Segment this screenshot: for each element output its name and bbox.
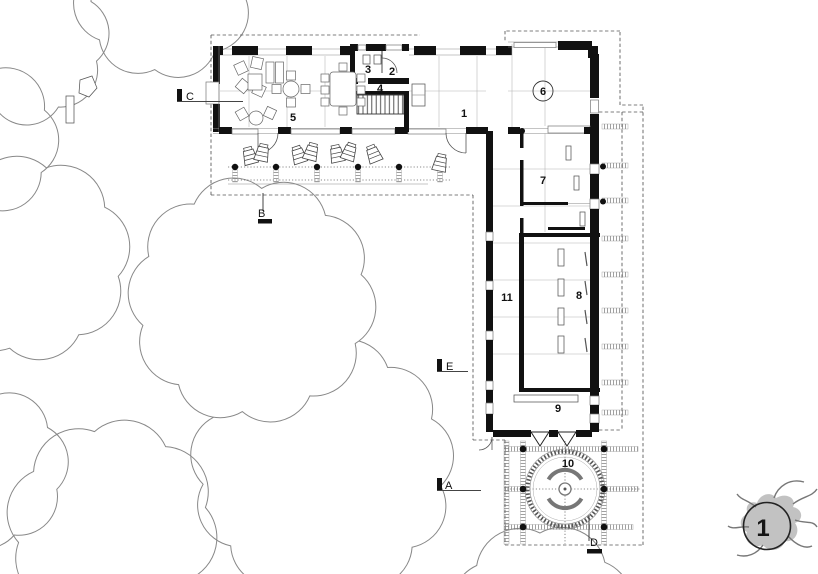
logo-mark: 1 (756, 515, 769, 542)
west-wing (206, 44, 512, 153)
door-threshold (558, 432, 576, 446)
south-terrace (228, 141, 450, 184)
room-label-7: 7 (540, 175, 546, 187)
room-label-1: 1 (461, 108, 467, 120)
room-label-9: 9 (555, 403, 561, 415)
section-marker-e: E (437, 359, 468, 373)
lounge-chairs (241, 141, 449, 172)
room-label-6: 6 (540, 86, 546, 98)
section-label-d: D (590, 537, 598, 549)
room-label-4: 4 (377, 83, 384, 95)
site-objects (66, 76, 97, 123)
bench-outline (66, 96, 74, 123)
room6-block (508, 41, 599, 134)
door-threshold (531, 432, 549, 446)
section-label-b: B (258, 208, 265, 220)
tree-canopy (128, 178, 376, 422)
site-plan-drawing: C B E A D 1 2 3 4 5 6 7 8 (0, 0, 818, 574)
tree-canopy (0, 0, 109, 125)
room-label-10: 10 (562, 458, 574, 470)
room-label-5: 5 (290, 112, 296, 124)
rock-outline (79, 76, 97, 97)
tree-canopy (74, 0, 253, 77)
room-label-3: 3 (365, 64, 371, 76)
spiral-court (504, 441, 641, 544)
tree-canopy (0, 58, 59, 217)
floor-plan-canvas: C B E A D 1 2 3 4 5 6 7 8 (0, 0, 818, 574)
room-label-11: 11 (501, 292, 513, 304)
section-marker-d: D (587, 515, 602, 554)
room-label-2: 2 (389, 66, 395, 78)
east-terrace (600, 124, 628, 415)
studio-logo: 1 (728, 481, 817, 556)
room-label-8: 8 (576, 290, 582, 302)
tree-canopy (0, 156, 130, 359)
tree-canopy (7, 420, 217, 574)
